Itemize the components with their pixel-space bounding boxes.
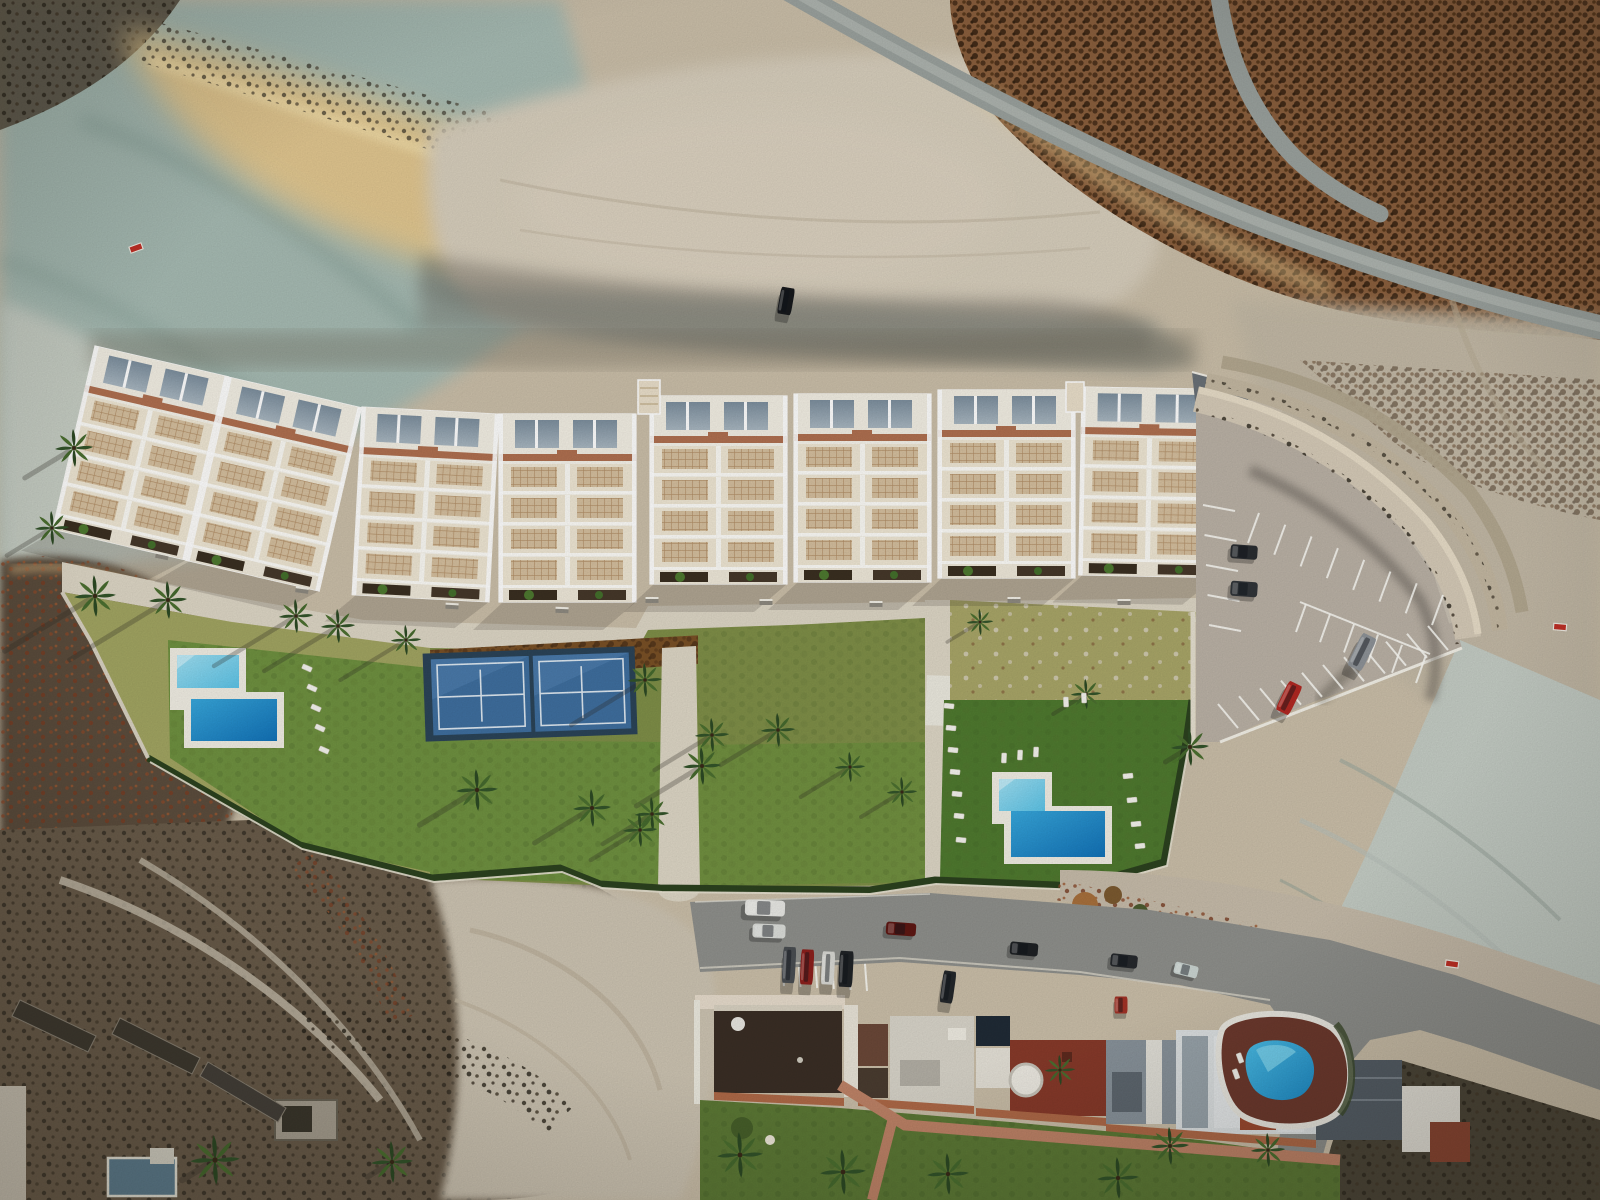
parking-line	[1344, 624, 1354, 652]
sun-lounger	[944, 703, 954, 709]
parked-car	[937, 970, 957, 1013]
palm-shadow	[1165, 747, 1190, 762]
palm-tree	[967, 609, 994, 636]
bench	[646, 597, 659, 603]
parking-line	[1379, 572, 1390, 602]
sun-lounger	[950, 769, 960, 775]
parking-line	[1296, 604, 1306, 632]
palm-trees	[35, 429, 1285, 1199]
existing-development	[0, 870, 1600, 1200]
right-swimming-pool	[992, 772, 1112, 864]
palm-shadow	[214, 616, 296, 666]
resort-gardens	[62, 562, 1196, 902]
palm-tree	[1171, 728, 1209, 766]
sun-lounger	[1123, 773, 1133, 779]
sun-lounger	[1017, 750, 1022, 760]
parking-line	[1218, 704, 1238, 728]
apartment-block	[1052, 387, 1219, 606]
parking-line	[911, 901, 913, 923]
sun-lounger	[1232, 1068, 1240, 1079]
palm-shadow	[7, 528, 52, 556]
sun-lounger	[946, 725, 956, 731]
outbuildings	[0, 1000, 337, 1200]
palm-tree	[683, 747, 721, 785]
apartment-block	[473, 414, 636, 630]
parking-line	[1428, 626, 1448, 650]
palm-shadow	[571, 680, 645, 725]
palm-shadow	[818, 1172, 843, 1187]
sun-lounger	[1081, 693, 1086, 703]
palm-shadow	[5, 596, 95, 651]
parking-line	[814, 948, 817, 988]
roof-extension-east	[1192, 372, 1286, 436]
apartment-block	[624, 396, 787, 612]
parked-car	[1227, 544, 1258, 564]
parked-car	[1341, 632, 1377, 682]
garden-path-west	[658, 646, 700, 902]
parked-car	[1170, 961, 1199, 983]
palm-shadow	[1145, 1146, 1170, 1161]
sun-lounger	[954, 813, 964, 819]
parking-line	[831, 949, 834, 989]
apartment-block	[21, 340, 228, 587]
parking-line	[939, 902, 941, 924]
warning-signs	[129, 243, 1567, 968]
apartment-block	[912, 390, 1075, 606]
sun-lounger	[1001, 753, 1006, 763]
palm-tree	[149, 581, 187, 619]
parking-line	[1205, 535, 1237, 541]
existing-pool-terrace	[1219, 1014, 1352, 1127]
sun-lounger	[314, 724, 325, 733]
palm-shadow	[591, 830, 640, 860]
red-sign	[1553, 623, 1566, 630]
sun-lounger	[948, 747, 958, 753]
palm-shadow	[264, 626, 338, 671]
left-swimming-pool	[170, 648, 284, 748]
sun-lounger	[1131, 821, 1141, 827]
parking-line	[1386, 642, 1406, 666]
parking-line	[884, 900, 886, 922]
sun-lounger	[1236, 1052, 1244, 1063]
photo-grain-overlay	[0, 0, 1600, 1200]
parking-line	[1203, 505, 1235, 511]
parking-line	[1368, 635, 1378, 663]
palm-tree	[717, 1132, 763, 1178]
palm-shadows	[5, 448, 1268, 1193]
bench	[295, 586, 309, 594]
bench	[1118, 599, 1131, 605]
palm-tree	[391, 625, 421, 655]
parking-line	[1208, 595, 1240, 601]
parking-line	[1248, 513, 1259, 543]
apartment-block	[768, 394, 931, 610]
palm-shadow	[603, 814, 652, 844]
bench	[870, 601, 883, 607]
apartment-block	[325, 406, 499, 630]
parking-line	[1281, 681, 1301, 705]
parking-line	[1301, 536, 1312, 566]
palm-shadow	[715, 1155, 740, 1170]
bench	[760, 599, 773, 605]
parked-car	[774, 286, 795, 323]
palm-shadow	[923, 1174, 948, 1189]
parking-line	[1416, 655, 1426, 683]
palm-tree	[623, 813, 657, 847]
palm-tree	[1071, 679, 1101, 709]
palm-tree	[628, 663, 662, 697]
parking-line	[1209, 625, 1241, 631]
access-road	[690, 893, 1600, 1200]
parking-line	[1239, 696, 1259, 720]
sun-lounger	[306, 684, 317, 693]
parking-line	[1326, 950, 1332, 974]
palm-shadow	[655, 735, 712, 770]
parking-lines	[781, 505, 1448, 991]
gabled-units	[1176, 1030, 1316, 1134]
palm-tree	[761, 713, 795, 747]
palm-tree	[1045, 1055, 1075, 1085]
palm-tree	[1251, 1133, 1285, 1167]
parking-line	[1406, 583, 1417, 613]
red-sign	[1445, 960, 1459, 968]
bench	[155, 552, 169, 561]
parked-car	[1270, 680, 1303, 725]
palm-tree	[695, 718, 729, 752]
palm-shadow	[801, 767, 850, 797]
palm-shadow	[70, 600, 168, 660]
palm-shadow	[947, 622, 980, 642]
parking-line	[856, 899, 858, 921]
parking-line	[1432, 595, 1443, 625]
parking-line	[1297, 944, 1303, 968]
parked-car	[882, 921, 916, 940]
aerial-photograph	[0, 0, 1600, 1200]
bench	[1008, 597, 1021, 603]
parking-line	[1407, 634, 1427, 658]
existing-apartment-row	[694, 995, 1470, 1162]
parking-line	[798, 947, 801, 987]
sun-lounger	[1135, 843, 1145, 849]
palm-tree	[35, 511, 69, 545]
palm-shadow	[420, 790, 477, 825]
palm-tree	[573, 789, 611, 827]
palm-shadow	[1093, 1178, 1118, 1193]
parking-lot	[1196, 362, 1522, 742]
palm-shadow	[535, 808, 592, 843]
palm-tree	[456, 769, 498, 811]
parking-line	[967, 904, 969, 926]
parking-line	[781, 946, 784, 986]
sun-lounger	[952, 791, 962, 797]
parking-line	[1323, 665, 1343, 689]
parking-line	[995, 905, 997, 927]
parked-car	[741, 899, 786, 921]
sun-loungers	[301, 664, 1244, 1080]
block-entrances	[638, 380, 1084, 414]
promenade-walkway	[62, 562, 1196, 652]
parked-car	[798, 949, 815, 995]
parking-line	[864, 951, 867, 991]
apartment-blocks-row	[21, 340, 1219, 630]
parked-car	[836, 951, 854, 999]
dirt-roads	[790, 0, 1600, 470]
sun-lounger	[1063, 697, 1068, 707]
palm-shadow	[861, 792, 902, 817]
palm-tree	[279, 599, 313, 633]
palm-shadow	[1248, 1150, 1269, 1163]
parking-line	[1206, 565, 1238, 571]
terrain-background	[0, 0, 1600, 1200]
palm-tree	[820, 1149, 866, 1195]
palm-tree	[887, 777, 917, 807]
parking-line	[1022, 906, 1024, 928]
garden-hedge	[148, 700, 1192, 890]
sun-lounger	[301, 664, 312, 673]
front-gardens	[700, 1100, 1340, 1200]
palm-shadow	[721, 730, 778, 765]
palm-tree	[371, 1141, 413, 1183]
parking-line	[847, 950, 850, 990]
parking-line	[1129, 949, 1134, 973]
parking-line	[1327, 548, 1338, 578]
palm-shadow	[636, 766, 702, 806]
vignette-overlay	[0, 0, 1600, 1200]
parked-car	[1113, 997, 1127, 1019]
parked-car	[1107, 953, 1138, 973]
palm-tree	[74, 575, 116, 617]
parking-line	[1274, 525, 1285, 555]
parking-line	[1320, 614, 1330, 642]
palm-tree	[835, 752, 865, 782]
parked-car	[749, 923, 786, 943]
sun-lounger	[1127, 797, 1137, 803]
parking-line	[1260, 688, 1280, 712]
parked-car	[1006, 941, 1038, 961]
garden-path-east	[925, 600, 950, 882]
garden-pavilion-pad	[925, 675, 977, 727]
parking-line	[1302, 673, 1322, 697]
parking-line	[1365, 649, 1385, 673]
palm-shadow	[367, 1162, 392, 1177]
sun-lounger	[318, 746, 329, 755]
parking-line	[1102, 944, 1107, 968]
parking-line	[1392, 645, 1402, 673]
palm-shadow	[340, 640, 406, 680]
palm-shadow	[182, 1160, 215, 1180]
parking-line	[1240, 932, 1246, 956]
parking-line	[1050, 907, 1052, 929]
parking-line	[1269, 938, 1275, 962]
palm-tree	[55, 429, 93, 467]
padel-courts	[423, 646, 638, 741]
palm-shadow	[25, 448, 74, 478]
parking-line	[1353, 560, 1364, 590]
aerial-photo-stage	[0, 0, 1600, 1200]
sun-lounger	[956, 837, 966, 843]
parked-car	[1227, 580, 1258, 602]
bench	[555, 607, 568, 613]
parking-line	[1157, 953, 1162, 977]
palm-tree	[1151, 1127, 1189, 1165]
parked-cars	[741, 286, 1378, 1018]
palm-tree	[190, 1135, 239, 1184]
parked-car	[780, 947, 797, 995]
parked-car	[819, 951, 836, 995]
palm-tree	[321, 609, 355, 643]
apartment-block	[154, 371, 361, 618]
palm-shadow	[1040, 1070, 1061, 1083]
parking-line	[1344, 657, 1364, 681]
palm-tree	[1097, 1157, 1139, 1199]
bench	[445, 603, 458, 610]
kidney-pool	[1246, 1040, 1315, 1100]
walkway-benches	[155, 552, 1130, 614]
parking-line	[1184, 958, 1189, 982]
palm-tree	[927, 1153, 969, 1195]
sun-lounger	[310, 704, 321, 713]
palm-tree	[635, 797, 669, 831]
red-sign	[129, 243, 143, 253]
sun-lounger	[1033, 747, 1038, 757]
palm-shadow	[1053, 694, 1086, 714]
